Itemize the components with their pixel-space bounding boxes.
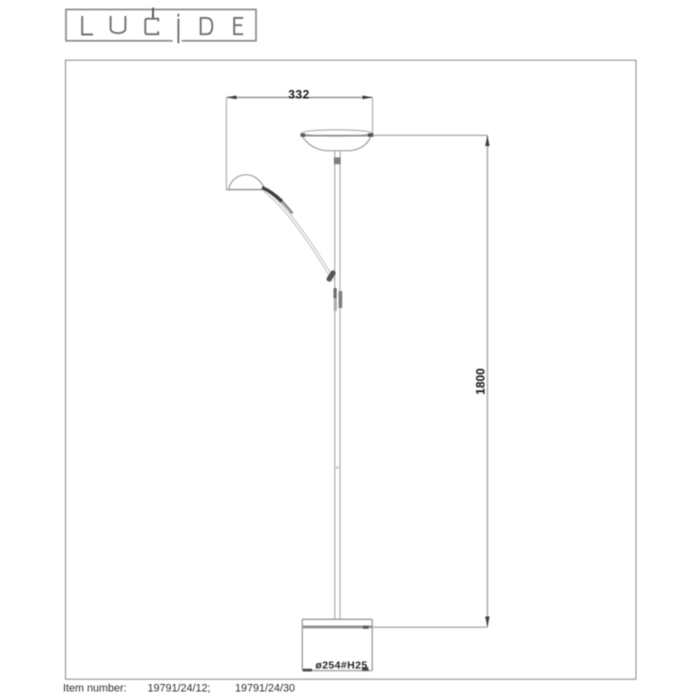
svg-text:19791/24/12;: 19791/24/12; [148,683,211,695]
svg-text:Item number:: Item number: [63,683,127,695]
svg-text:ø254#H25: ø254#H25 [315,660,367,672]
svg-text:1800: 1800 [474,368,488,395]
svg-text:19791/24/30: 19791/24/30 [235,683,295,695]
svg-text:332: 332 [288,87,310,101]
